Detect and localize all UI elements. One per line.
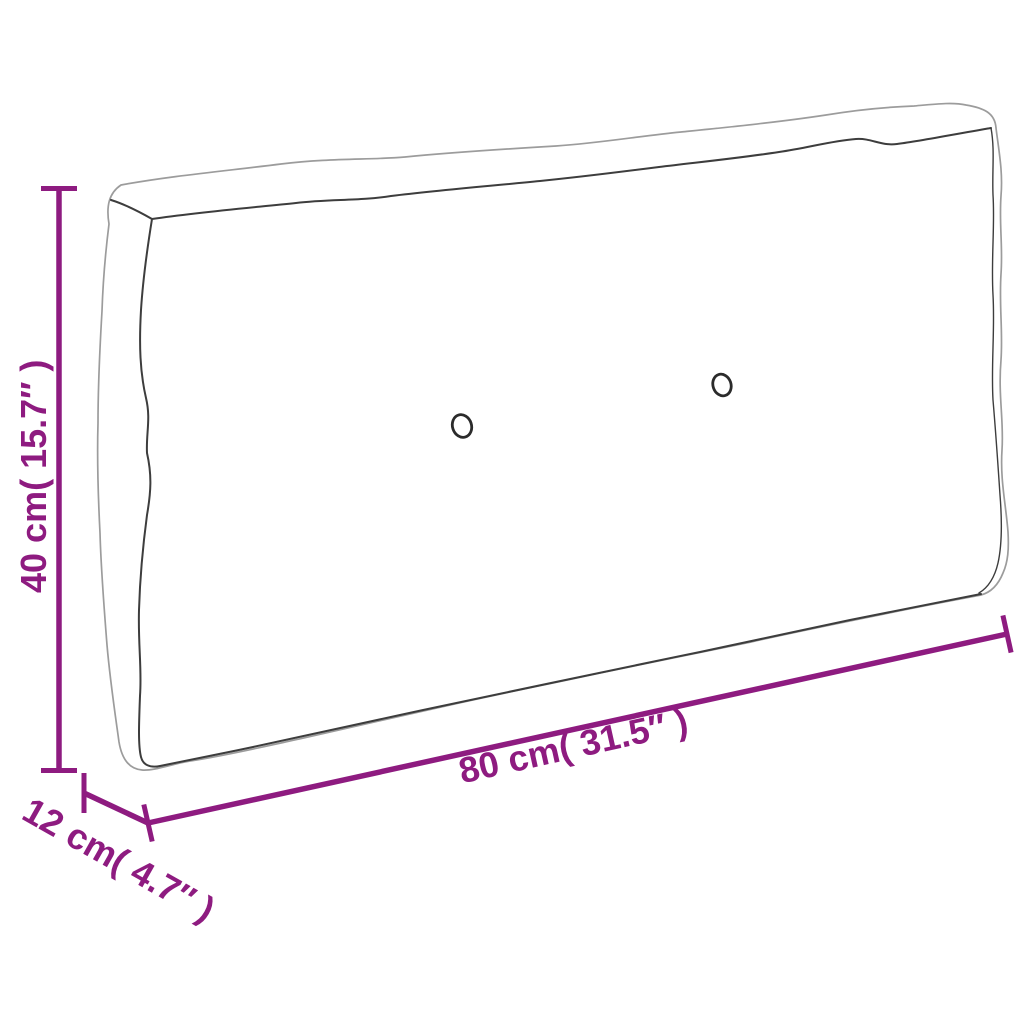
cushion-seam-right [979,128,1001,593]
cushion-seam-top [152,128,991,219]
cushion-line-art [98,103,1009,770]
dimension-annotations: 40 cm( 15.7″ ) 12 cm( 4.7″ ) 80 cm( 31.5… [13,189,1011,931]
cushion-button-right [710,372,734,398]
width-dimension-label: 80 cm( 31.5″ ) [455,700,692,791]
depth-dimension-line [84,793,148,823]
cushion-seam-left-bottom [139,219,981,767]
height-dimension-label: 40 cm( 15.7″ ) [13,360,54,593]
cushion-button-left [449,412,474,440]
dimension-diagram: 40 cm( 15.7″ ) 12 cm( 4.7″ ) 80 cm( 31.5… [0,0,1024,1024]
cushion-corner-dart [111,200,152,219]
cushion-outer-outline [98,103,1009,770]
diagram-svg: 40 cm( 15.7″ ) 12 cm( 4.7″ ) 80 cm( 31.5… [0,0,1024,1024]
